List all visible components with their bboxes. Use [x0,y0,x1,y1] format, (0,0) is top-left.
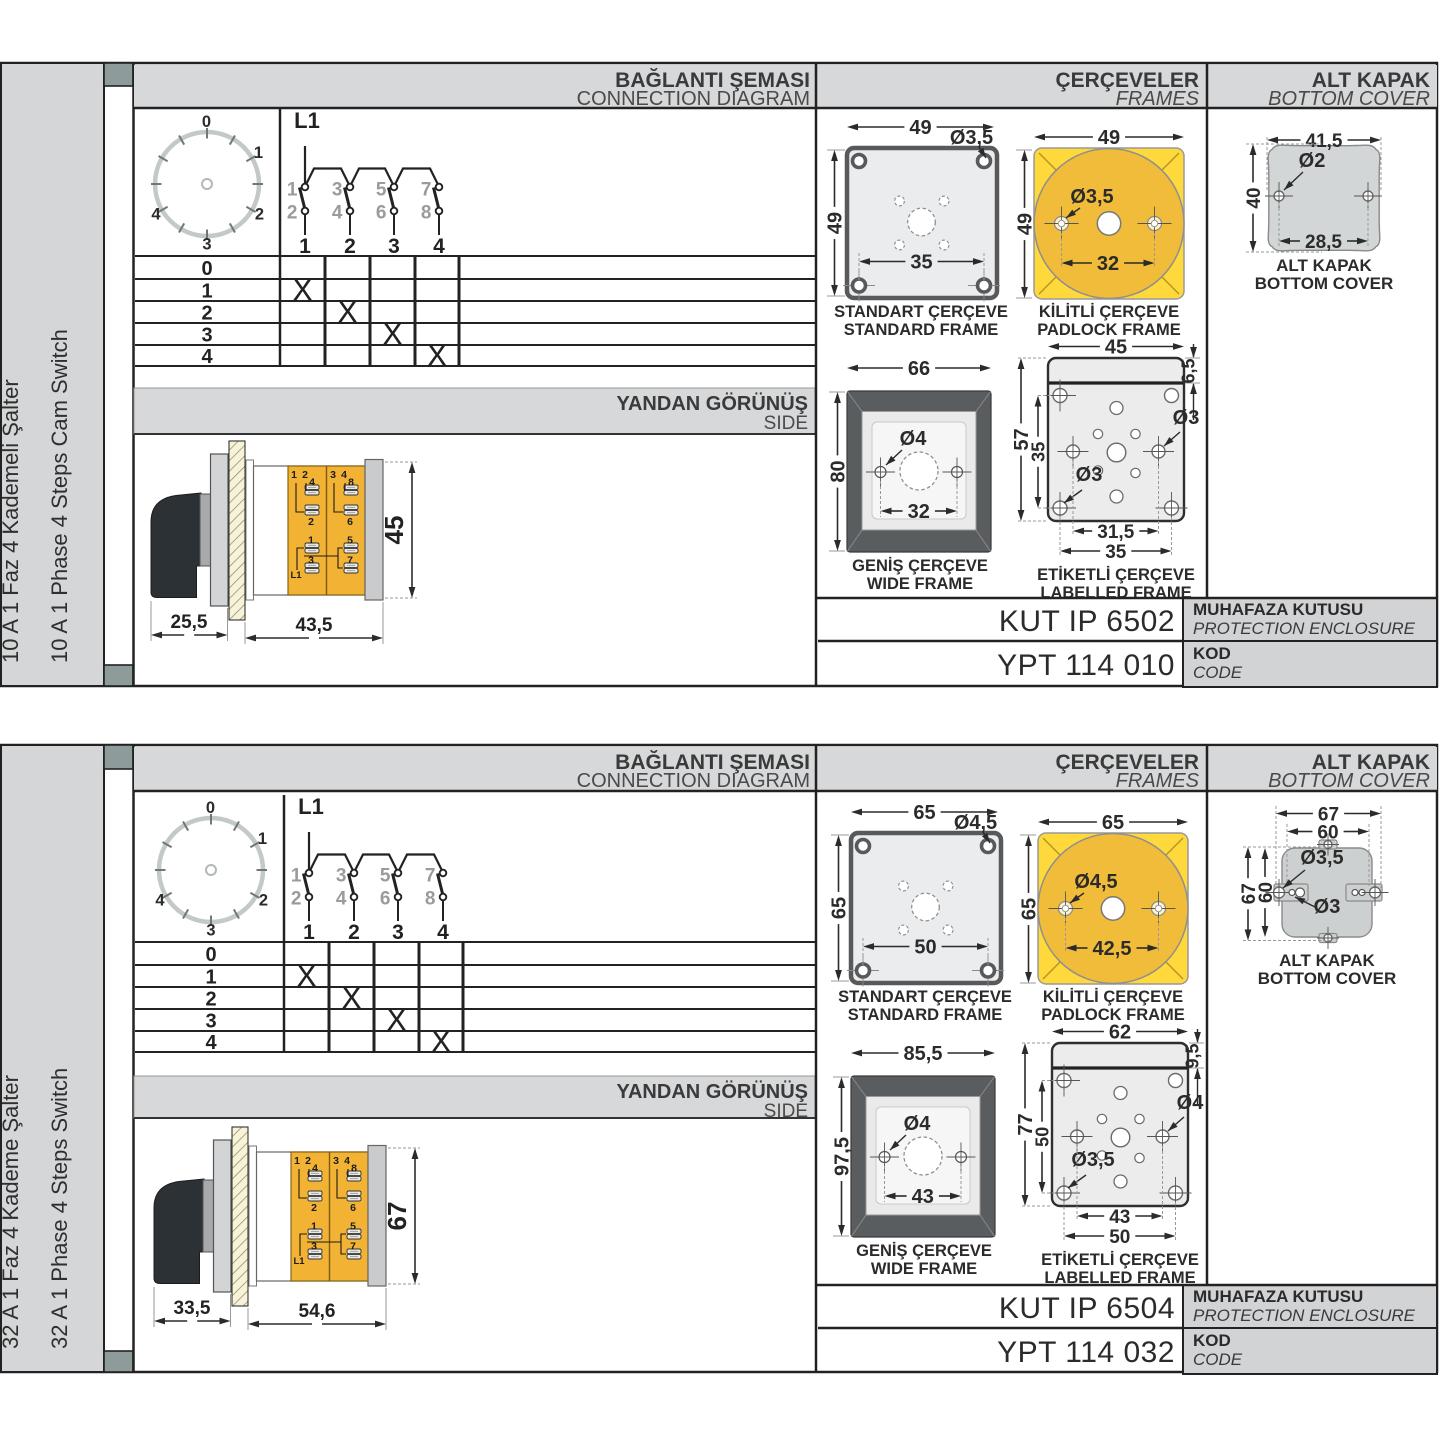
svg-text:43: 43 [1109,1207,1130,1228]
svg-text:ETİKETLİ ÇERÇEVE: ETİKETLİ ÇERÇEVE [1037,566,1195,584]
svg-text:1: 1 [299,235,311,258]
svg-text:BOTTOM COVER: BOTTOM COVER [1255,274,1394,293]
svg-text:Ø3: Ø3 [1076,464,1103,486]
svg-text:1: 1 [287,180,298,201]
svg-text:L1: L1 [290,570,302,581]
svg-text:YANDAN GÖRÜNÜŞ: YANDAN GÖRÜNÜŞ [616,1080,808,1103]
svg-text:CODE: CODE [1193,1350,1243,1369]
svg-text:0: 0 [202,113,211,131]
svg-text:40: 40 [1244,187,1265,208]
svg-text:Ø4,5: Ø4,5 [954,812,997,834]
svg-text:4: 4 [312,1163,318,1175]
svg-text:2: 2 [205,989,216,1011]
svg-text:3: 3 [333,1155,339,1167]
svg-text:1: 1 [294,1155,300,1167]
svg-text:2: 2 [259,892,268,910]
svg-text:50: 50 [1109,1227,1130,1248]
svg-text:32 A 1 Faz 4 Kademe Şalter: 32 A 1 Faz 4 Kademe Şalter [0,1075,23,1349]
svg-text:7: 7 [347,555,353,567]
svg-text:KOD: KOD [1193,1331,1231,1350]
svg-text:33,5: 33,5 [174,1298,211,1319]
svg-text:67: 67 [382,1202,412,1231]
svg-text:35: 35 [1029,442,1049,462]
svg-text:5: 5 [380,866,391,887]
svg-text:KUT IP 6502: KUT IP 6502 [999,605,1175,638]
svg-text:STANDARD FRAME: STANDARD FRAME [844,321,999,339]
svg-text:5: 5 [376,180,387,201]
svg-text:2: 2 [348,921,360,944]
svg-text:X: X [386,1002,407,1038]
svg-text:L1: L1 [293,1256,305,1267]
svg-text:ETİKETLİ ÇERÇEVE: ETİKETLİ ÇERÇEVE [1041,1251,1199,1269]
svg-text:CODE: CODE [1193,663,1243,682]
svg-text:3: 3 [205,1011,216,1033]
svg-text:6: 6 [380,889,391,910]
svg-text:6: 6 [350,1202,356,1214]
svg-text:35: 35 [910,252,932,274]
svg-text:2: 2 [308,516,314,528]
svg-text:35: 35 [1105,542,1127,563]
svg-text:0: 0 [205,944,216,966]
svg-text:SIDE: SIDE [764,413,808,434]
svg-text:Ø3,5: Ø3,5 [950,127,993,149]
svg-text:3: 3 [336,866,347,887]
svg-text:10 A 1 Phase 4 Steps Cam Switc: 10 A 1 Phase 4 Steps Cam Switch [47,329,72,663]
svg-text:YPT 114 032: YPT 114 032 [997,1336,1175,1369]
svg-text:1: 1 [291,866,302,887]
svg-text:PROTECTION ENCLOSURE: PROTECTION ENCLOSURE [1193,1306,1416,1325]
svg-text:0: 0 [201,258,212,280]
svg-text:GENİŞ ÇERÇEVE: GENİŞ ÇERÇEVE [852,557,988,575]
svg-text:7: 7 [350,1241,356,1253]
svg-text:49: 49 [909,117,931,139]
svg-text:Ø2: Ø2 [1299,150,1326,172]
svg-text:ALT KAPAK: ALT KAPAK [1279,951,1375,970]
svg-text:MUHAFAZA KUTUSU: MUHAFAZA KUTUSU [1193,600,1363,619]
svg-text:32: 32 [908,501,930,523]
svg-text:4: 4 [336,889,347,910]
svg-text:60: 60 [1256,882,1277,903]
svg-text:50: 50 [1033,1127,1053,1147]
svg-text:2: 2 [305,1155,311,1167]
svg-text:WIDE FRAME: WIDE FRAME [867,575,973,593]
svg-text:FRAMES: FRAMES [1116,770,1200,792]
svg-text:KOD: KOD [1193,644,1231,663]
svg-text:Ø3,5: Ø3,5 [1070,186,1113,208]
svg-text:49: 49 [825,212,847,234]
svg-text:Ø3,5: Ø3,5 [1071,1149,1114,1171]
svg-text:41,5: 41,5 [1306,131,1343,152]
svg-text:KİLİTLİ ÇERÇEVE: KİLİTLİ ÇERÇEVE [1043,988,1183,1006]
svg-text:STANDART ÇERÇEVE: STANDART ÇERÇEVE [838,988,1012,1006]
svg-text:3: 3 [392,921,404,944]
svg-text:STANDARD FRAME: STANDARD FRAME [848,1006,1003,1024]
svg-text:1: 1 [205,967,216,989]
svg-text:3: 3 [206,922,215,940]
svg-text:66: 66 [908,358,930,380]
svg-text:45: 45 [1105,337,1127,359]
svg-text:4: 4 [437,921,449,944]
svg-text:8: 8 [351,1163,357,1175]
svg-text:Ø4: Ø4 [1177,1092,1205,1114]
svg-text:65: 65 [829,897,851,919]
svg-text:Ø3,5: Ø3,5 [1300,847,1343,869]
svg-text:8: 8 [348,477,354,489]
svg-text:4: 4 [201,346,213,368]
svg-text:2: 2 [255,206,264,224]
svg-text:KİLİTLİ ÇERÇEVE: KİLİTLİ ÇERÇEVE [1039,303,1179,321]
svg-text:62: 62 [1109,1022,1131,1044]
svg-text:28,5: 28,5 [1305,232,1342,253]
svg-text:1: 1 [311,1221,317,1233]
svg-text:60: 60 [1317,822,1338,843]
svg-text:BOTTOM COVER: BOTTOM COVER [1268,770,1430,792]
svg-text:4: 4 [344,1155,350,1167]
svg-text:Ø3: Ø3 [1314,896,1341,918]
svg-text:1: 1 [291,469,297,481]
svg-text:1: 1 [308,535,314,547]
svg-text:45: 45 [379,516,409,545]
svg-text:3: 3 [330,469,336,481]
svg-text:X: X [337,294,358,330]
svg-text:LABELLED FRAME: LABELLED FRAME [1040,584,1191,602]
svg-text:YPT 114 010: YPT 114 010 [997,649,1175,682]
svg-text:1: 1 [254,144,263,162]
svg-text:Ø4,5: Ø4,5 [1074,871,1117,893]
svg-text:9,5: 9,5 [1183,1043,1203,1068]
svg-text:2: 2 [302,469,308,481]
svg-text:1: 1 [201,281,212,303]
svg-text:ALT KAPAK: ALT KAPAK [1276,256,1372,275]
svg-text:Ø4: Ø4 [904,1113,932,1135]
svg-text:BOTTOM COVER: BOTTOM COVER [1258,969,1397,988]
svg-text:49: 49 [1098,127,1120,149]
svg-text:5: 5 [347,535,353,547]
svg-text:43,5: 43,5 [296,615,333,636]
svg-text:3: 3 [332,180,343,201]
svg-text:CONNECTION DIAGRAM: CONNECTION DIAGRAM [577,770,810,792]
svg-text:Ø4: Ø4 [900,428,928,450]
svg-text:FRAMES: FRAMES [1116,88,1200,110]
svg-text:SIDE: SIDE [764,1101,808,1122]
svg-text:X: X [296,958,317,994]
svg-text:4: 4 [309,477,315,489]
svg-text:54,6: 54,6 [299,1301,336,1322]
svg-text:85,5: 85,5 [904,1043,943,1065]
svg-text:BOTTOM COVER: BOTTOM COVER [1268,88,1430,110]
svg-text:X: X [292,272,313,308]
svg-text:GENİŞ ÇERÇEVE: GENİŞ ÇERÇEVE [856,1242,992,1260]
svg-text:8: 8 [421,203,432,224]
svg-text:10 A 1 Faz 4 Kademeli Şalter: 10 A 1 Faz 4 Kademeli Şalter [0,379,23,663]
svg-text:31,5: 31,5 [1097,522,1134,543]
svg-text:X: X [341,980,362,1016]
svg-text:6,5: 6,5 [1179,358,1199,383]
svg-text:32 A 1 Phase 4 Steps Switch: 32 A 1 Phase 4 Steps Switch [47,1068,72,1349]
svg-text:8: 8 [425,889,436,910]
svg-text:2: 2 [291,889,302,910]
svg-text:50: 50 [914,937,936,959]
svg-text:65: 65 [1102,812,1124,834]
svg-text:4: 4 [205,1032,217,1054]
svg-text:7: 7 [425,866,436,887]
svg-text:32: 32 [1097,253,1119,275]
svg-text:X: X [382,316,403,352]
svg-text:6: 6 [347,516,353,528]
svg-text:4: 4 [341,469,347,481]
svg-text:L1: L1 [298,794,324,819]
svg-text:KUT IP 6504: KUT IP 6504 [999,1292,1175,1325]
svg-text:1: 1 [303,921,315,944]
svg-text:0: 0 [206,799,215,817]
svg-text:X: X [426,338,447,374]
svg-text:Ø3: Ø3 [1173,407,1200,429]
svg-text:3: 3 [388,235,400,258]
svg-text:1: 1 [258,830,267,848]
svg-text:2: 2 [311,1202,317,1214]
svg-text:6: 6 [376,203,387,224]
svg-text:CONNECTION DIAGRAM: CONNECTION DIAGRAM [577,88,810,110]
svg-text:YANDAN GÖRÜNÜŞ: YANDAN GÖRÜNÜŞ [616,392,808,415]
svg-text:25,5: 25,5 [171,612,208,633]
svg-text:42,5: 42,5 [1093,938,1132,960]
svg-text:4: 4 [332,203,343,224]
svg-text:PROTECTION ENCLOSURE: PROTECTION ENCLOSURE [1193,619,1416,638]
svg-text:65: 65 [913,802,935,824]
svg-text:4: 4 [433,235,445,258]
svg-text:4: 4 [155,892,165,910]
svg-text:3: 3 [202,236,211,254]
svg-text:STANDART ÇERÇEVE: STANDART ÇERÇEVE [834,303,1008,321]
svg-text:L1: L1 [294,108,320,133]
svg-text:X: X [430,1024,451,1060]
svg-text:3: 3 [201,325,212,347]
svg-text:MUHAFAZA KUTUSU: MUHAFAZA KUTUSU [1193,1287,1363,1306]
svg-text:WIDE FRAME: WIDE FRAME [871,1260,977,1278]
svg-text:2: 2 [287,203,298,224]
svg-text:43: 43 [912,1186,934,1208]
svg-text:2: 2 [344,235,356,258]
svg-text:5: 5 [350,1221,356,1233]
svg-text:2: 2 [201,303,212,325]
svg-text:4: 4 [151,206,161,224]
svg-text:7: 7 [421,180,432,201]
